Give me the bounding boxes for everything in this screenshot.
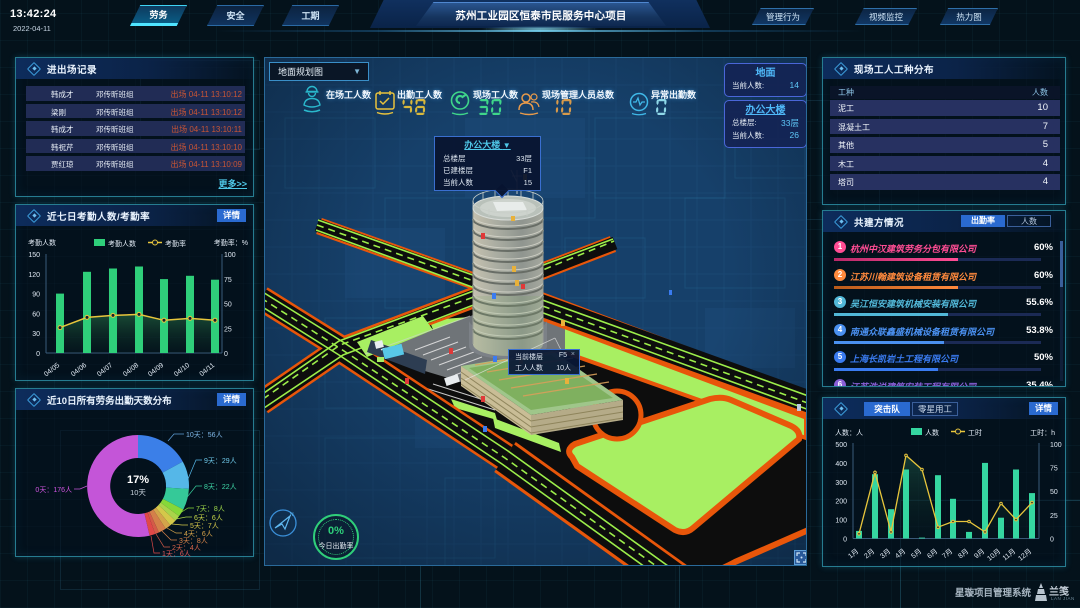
- svg-text:17%: 17%: [127, 474, 149, 486]
- svg-text:8月: 8月: [957, 547, 971, 560]
- svg-text:N: N: [290, 512, 294, 518]
- svg-text:12月: 12月: [1017, 547, 1034, 562]
- svg-text:考勤率：%: 考勤率：%: [214, 238, 248, 247]
- svg-text:5月: 5月: [910, 547, 924, 560]
- svg-text:工时: 工时: [968, 428, 982, 437]
- svg-text:25: 25: [224, 326, 232, 333]
- svg-text:人数：人: 人数：人: [835, 428, 863, 437]
- svg-text:4天：6人: 4天：6人: [184, 530, 213, 538]
- svg-text:25: 25: [1050, 513, 1058, 520]
- svg-text:考勤率: 考勤率: [165, 239, 186, 248]
- svg-text:120: 120: [28, 272, 40, 279]
- svg-text:0: 0: [843, 537, 847, 544]
- svg-text:7月: 7月: [941, 547, 955, 560]
- svg-text:10天: 10天: [130, 488, 146, 497]
- svg-text:500: 500: [835, 442, 847, 449]
- svg-text:04/09: 04/09: [147, 362, 165, 378]
- svg-text:90: 90: [32, 292, 40, 299]
- svg-text:人数: 人数: [925, 428, 939, 437]
- svg-text:75: 75: [1050, 466, 1058, 473]
- svg-text:5天：7人: 5天：7人: [190, 522, 219, 530]
- svg-text:10月: 10月: [986, 547, 1003, 562]
- svg-text:50: 50: [224, 302, 232, 309]
- svg-text:04/07: 04/07: [96, 362, 114, 378]
- svg-text:7天：8人: 7天：8人: [196, 505, 225, 513]
- svg-text:3天：8人: 3天：8人: [179, 537, 208, 545]
- svg-text:10天：56人: 10天：56人: [186, 431, 223, 439]
- svg-text:400: 400: [835, 461, 847, 468]
- svg-text:300: 300: [835, 480, 847, 487]
- svg-text:04/11: 04/11: [199, 362, 217, 378]
- svg-text:200: 200: [835, 499, 847, 506]
- svg-text:100: 100: [835, 518, 847, 525]
- svg-text:3月: 3月: [879, 547, 893, 560]
- svg-text:4月: 4月: [894, 547, 908, 560]
- svg-text:考勤人数: 考勤人数: [28, 238, 56, 247]
- svg-text:8天：22人: 8天：22人: [204, 483, 237, 491]
- svg-text:9月: 9月: [973, 547, 987, 560]
- svg-text:9天：29人: 9天：29人: [204, 457, 237, 465]
- svg-text:6月: 6月: [926, 547, 940, 560]
- svg-text:04/06: 04/06: [70, 362, 88, 378]
- svg-text:60: 60: [32, 311, 40, 318]
- svg-text:50: 50: [1050, 489, 1058, 496]
- svg-text:0: 0: [224, 351, 228, 358]
- svg-text:100: 100: [224, 252, 236, 259]
- svg-text:1天：6人: 1天：6人: [162, 550, 191, 557]
- svg-text:30: 30: [32, 331, 40, 338]
- svg-text:11月: 11月: [1001, 547, 1017, 562]
- svg-text:1月: 1月: [847, 547, 861, 560]
- svg-text:6天：6人: 6天：6人: [194, 514, 223, 522]
- svg-text:100: 100: [1050, 442, 1062, 449]
- svg-text:150: 150: [28, 252, 40, 259]
- svg-text:2月: 2月: [863, 547, 877, 560]
- svg-text:工时：h: 工时：h: [1030, 428, 1055, 437]
- svg-text:0天：176人: 0天：176人: [35, 486, 72, 494]
- svg-text:75: 75: [224, 277, 232, 284]
- svg-text:0: 0: [1050, 537, 1054, 544]
- svg-text:04/05: 04/05: [43, 362, 61, 378]
- svg-text:0: 0: [36, 351, 40, 358]
- svg-text:04/10: 04/10: [173, 362, 191, 378]
- svg-text:考勤人数: 考勤人数: [108, 239, 136, 248]
- svg-text:04/08: 04/08: [122, 362, 140, 378]
